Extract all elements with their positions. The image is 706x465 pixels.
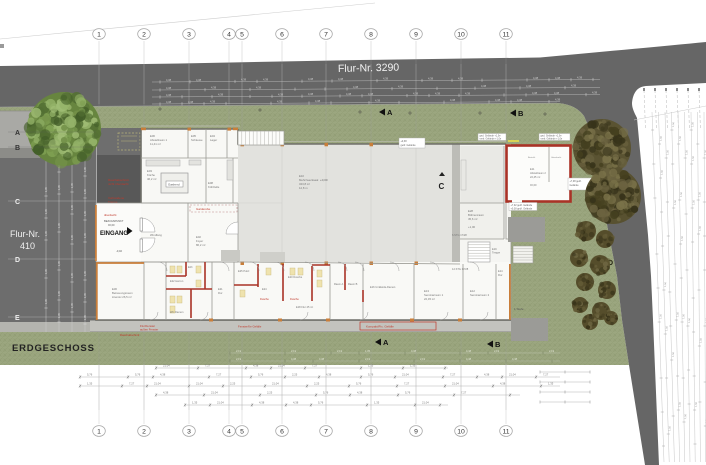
svg-text:geöf. Gelände: geöf. Gelände [401, 144, 417, 147]
svg-text:4,38: 4,38 [166, 100, 172, 104]
svg-text:1,50: 1,50 [678, 401, 681, 407]
svg-text:4,38: 4,38 [188, 100, 194, 104]
svg-text:Raum B: Raum B [348, 282, 358, 286]
svg-text:3: 3 [187, 429, 191, 436]
svg-text:21,04: 21,04 [278, 364, 285, 368]
svg-text:4,38: 4,38 [211, 86, 217, 90]
svg-text:E11: E11 [530, 167, 535, 171]
svg-text:1,50: 1,50 [659, 313, 662, 319]
svg-text:1,50: 1,50 [665, 325, 668, 331]
svg-text:B: B [518, 109, 524, 118]
svg-text:Abstellraum 2: Abstellraum 2 [530, 171, 546, 175]
svg-text:4,38: 4,38 [263, 77, 269, 81]
svg-text:Kühlzelle: Kühlzelle [208, 185, 220, 189]
svg-text:4,38: 4,38 [253, 364, 259, 368]
svg-text:verb. Gelände +1,0e: verb. Gelände +1,0e [541, 138, 563, 141]
svg-text:Gasherd: Gasherd [168, 183, 180, 187]
svg-text:4,38: 4,38 [383, 77, 389, 81]
svg-text:E23: E23 [188, 266, 193, 269]
svg-text:1,50: 1,50 [661, 169, 664, 175]
svg-text:1,35: 1,35 [58, 291, 61, 296]
svg-text:1,50: 1,50 [699, 225, 702, 231]
svg-text:intensiv 26,5 m²: intensiv 26,5 m² [112, 295, 132, 299]
svg-text:1,35: 1,35 [58, 223, 61, 228]
svg-text:7: 7 [324, 32, 328, 39]
svg-text:46,2 m²: 46,2 m² [147, 177, 157, 181]
svg-text:1,35: 1,35 [71, 303, 74, 308]
svg-text:1,50: 1,50 [688, 317, 691, 323]
svg-text:1,35: 1,35 [45, 231, 48, 236]
svg-text:4: 4 [227, 429, 231, 436]
svg-text:Lager: Lager [210, 138, 217, 142]
svg-text:4,38: 4,38 [526, 84, 532, 88]
svg-text:8: 8 [369, 429, 373, 436]
svg-text:ERDGESCHOSS: ERDGESCHOSS [12, 343, 95, 354]
svg-text:21,04: 21,04 [154, 382, 161, 386]
svg-text:21,04: 21,04 [509, 373, 516, 377]
svg-text:-0,02: -0,02 [116, 249, 122, 253]
svg-text:4,38: 4,38 [259, 401, 265, 405]
svg-text:21,04: 21,04 [163, 364, 170, 368]
svg-text:1,35: 1,35 [71, 205, 74, 210]
svg-text:4,38: 4,38 [368, 92, 374, 96]
svg-text:4,38: 4,38 [465, 91, 471, 95]
svg-text:1,35: 1,35 [58, 261, 61, 266]
svg-text:Dusche: Dusche [290, 297, 299, 301]
svg-text:7,27: 7,27 [216, 373, 222, 377]
svg-text:7,27: 7,27 [450, 373, 456, 377]
svg-text:Gelände: Gelände [570, 184, 580, 187]
svg-text:4,38: 4,38 [256, 86, 262, 90]
svg-text:1,50: 1,50 [679, 135, 682, 141]
svg-text:4,38: 4,38 [484, 373, 490, 377]
svg-text:4,38: 4,38 [435, 92, 441, 96]
svg-text:1,35: 1,35 [84, 271, 87, 276]
svg-text:11: 11 [502, 429, 509, 436]
svg-text:86,2 m²: 86,2 m² [196, 243, 206, 247]
svg-text:4,48: 4,48 [466, 349, 472, 353]
svg-text:21,04: 21,04 [211, 391, 218, 395]
svg-text:11: 11 [502, 32, 509, 39]
svg-text:2,25: 2,25 [314, 382, 320, 386]
svg-text:Bestuhl.: Bestuhl. [528, 156, 536, 159]
svg-text:2,25: 2,25 [292, 373, 298, 377]
svg-text:Garderobe: Garderobe [196, 207, 211, 211]
svg-text:1,50: 1,50 [672, 351, 675, 357]
svg-text:5: 5 [240, 429, 244, 436]
svg-text:4,38: 4,38 [532, 91, 538, 95]
svg-text:1,35: 1,35 [84, 167, 87, 172]
svg-text:1,35: 1,35 [45, 299, 48, 304]
svg-text:7,27: 7,27 [312, 364, 318, 368]
svg-text:EINGANG: EINGANG [100, 231, 128, 237]
svg-text:Seminarraum 2: Seminarraum 2 [470, 293, 490, 297]
svg-text:1,50: 1,50 [681, 235, 684, 241]
svg-text:4,38: 4,38 [495, 98, 501, 102]
svg-text:8: 8 [369, 32, 373, 39]
svg-text:1,35: 1,35 [45, 209, 48, 214]
svg-text:2,25: 2,25 [267, 391, 273, 395]
svg-text:4,38: 4,38 [592, 91, 598, 95]
svg-text:Fenster/Ke Gefälle: Fenster/Ke Gefälle [238, 325, 262, 329]
svg-text:Treppe: Treppe [492, 251, 501, 255]
svg-text:410: 410 [20, 241, 35, 251]
svg-text:21,04: 21,04 [422, 401, 429, 405]
svg-text:E24: E24 [262, 287, 267, 291]
svg-text:1,50: 1,50 [699, 337, 702, 343]
svg-text:verb. Gelände +1,0e: verb. Gelände +1,0e [480, 138, 502, 141]
svg-text:Flur-Nr.: Flur-Nr. [10, 229, 40, 239]
svg-text:E21: E21 [218, 287, 223, 291]
svg-text:±0,00: ±0,00 [530, 183, 537, 187]
svg-text:1,50: 1,50 [674, 199, 677, 205]
svg-text:Kompakt/Fix. Gefälle: Kompakt/Fix. Gefälle [366, 325, 394, 329]
svg-text:4,38: 4,38 [308, 92, 314, 96]
svg-text:+7,08 geöf.: +7,08 geöf. [570, 180, 582, 183]
svg-text:12.STG 17/28: 12.STG 17/28 [452, 267, 469, 271]
svg-text:1,50: 1,50 [664, 281, 667, 287]
svg-text:2,19: 2,19 [549, 349, 555, 353]
svg-text:22,45 m²: 22,45 m² [530, 175, 540, 179]
svg-text:4,38: 4,38 [533, 76, 539, 80]
svg-text:1,35: 1,35 [71, 273, 74, 278]
svg-text:4,38: 4,38 [293, 401, 299, 405]
svg-text:E: E [15, 315, 20, 322]
svg-text:1,35: 1,35 [84, 233, 87, 238]
svg-text:4,38: 4,38 [278, 92, 284, 96]
svg-text:7,27: 7,27 [129, 382, 135, 386]
svg-text:6: 6 [280, 32, 284, 39]
svg-text:BEZUGSPUNKT: BEZUGSPUNKT [104, 219, 124, 223]
svg-text:1,35: 1,35 [365, 349, 371, 353]
svg-text:E16 Umkleide-Damen: E16 Umkleide-Damen [370, 285, 396, 289]
svg-text:4,38: 4,38 [291, 357, 297, 361]
svg-text:+1,00: +1,00 [468, 225, 476, 229]
svg-text:1,35: 1,35 [87, 382, 93, 386]
svg-text:1,50: 1,50 [685, 149, 688, 155]
svg-text:B: B [15, 145, 20, 152]
svg-text:2: 2 [142, 429, 146, 436]
svg-text:1 Stufe: 1 Stufe [514, 307, 524, 311]
svg-text:5,76: 5,76 [87, 373, 93, 377]
svg-text:1,35: 1,35 [45, 269, 48, 274]
svg-text:5: 5 [240, 32, 244, 39]
svg-text:4,38: 4,38 [555, 98, 561, 102]
svg-text:4,38: 4,38 [357, 391, 363, 395]
svg-text:4,38: 4,38 [241, 78, 247, 82]
svg-text:Windfang: Windfang [150, 233, 162, 237]
svg-text:2,19: 2,19 [420, 357, 426, 361]
svg-text:4,38: 4,38 [308, 77, 314, 81]
svg-text:4,38: 4,38 [210, 100, 216, 104]
svg-text:E20 Dusche: E20 Dusche [288, 275, 303, 279]
svg-text:7,27: 7,27 [543, 373, 549, 377]
svg-text:10: 10 [457, 429, 465, 436]
svg-text:4,38: 4,38 [375, 99, 381, 103]
svg-text:E25 Putzr.: E25 Putzr. [238, 269, 250, 273]
svg-text:1,50: 1,50 [668, 425, 671, 431]
svg-text:21,04: 21,04 [217, 401, 224, 405]
svg-text:7,27: 7,27 [205, 364, 211, 368]
svg-text:4,38: 4,38 [166, 93, 172, 97]
svg-text:11,41 m²: 11,41 m² [150, 142, 161, 146]
svg-text:4,38: 4,38 [500, 382, 506, 386]
svg-text:+0,38 geöf. Gelände: +0,38 geöf. Gelände [511, 208, 533, 211]
svg-text:4,38: 4,38 [555, 76, 561, 80]
svg-text:4,38: 4,38 [326, 373, 332, 377]
svg-text:4,38: 4,38 [450, 98, 456, 102]
svg-text:außen Fenster: außen Fenster [140, 328, 158, 332]
svg-text:1,50: 1,50 [672, 121, 675, 127]
svg-text:Dusche: Dusche [260, 297, 269, 301]
svg-text:1,50: 1,50 [682, 313, 685, 319]
svg-text:4,38: 4,38 [481, 84, 487, 88]
svg-text:4,38: 4,38 [196, 78, 202, 82]
svg-text:10: 10 [457, 32, 465, 39]
svg-text:Rauchabschnitt: Rauchabschnitt [120, 333, 140, 337]
svg-text:1,35: 1,35 [374, 401, 380, 405]
svg-text:5,76: 5,76 [318, 401, 324, 405]
svg-text:4,38: 4,38 [411, 349, 417, 353]
svg-text:21,04: 21,04 [452, 382, 459, 386]
svg-text:4,38: 4,38 [166, 78, 172, 82]
svg-text:WC Damen: WC Damen [170, 310, 184, 314]
svg-text:2,19: 2,19 [291, 349, 297, 353]
svg-text:Flur-Nr. 3290: Flur-Nr. 3290 [338, 62, 400, 75]
svg-text:1: 1 [97, 429, 101, 436]
svg-text:1,35: 1,35 [71, 235, 74, 240]
svg-text:1,50: 1,50 [660, 135, 663, 141]
svg-text:4,38: 4,38 [517, 98, 523, 102]
svg-text:12,8 m: 12,8 m [299, 186, 308, 190]
svg-text:1,35: 1,35 [71, 183, 74, 188]
svg-text:45,6 m²: 45,6 m² [468, 217, 478, 221]
svg-text:E14: E14 [498, 269, 503, 273]
svg-text:7,27: 7,27 [461, 391, 467, 395]
svg-text:1,35: 1,35 [84, 211, 87, 216]
svg-text:4,38: 4,38 [398, 85, 404, 89]
svg-text:21,04: 21,04 [272, 382, 279, 386]
svg-text:4,38: 4,38 [218, 93, 224, 97]
svg-text:4,48: 4,48 [512, 357, 518, 361]
svg-text:1,50: 1,50 [680, 191, 683, 197]
svg-text:1,35: 1,35 [84, 315, 87, 320]
svg-text:4,38: 4,38 [319, 357, 325, 361]
svg-text:4,38: 4,38 [413, 92, 419, 96]
svg-text:4,38: 4,38 [577, 76, 583, 80]
svg-text:2,19: 2,19 [236, 349, 242, 353]
svg-text:1,50: 1,50 [684, 413, 687, 419]
svg-text:4,38: 4,38 [458, 76, 464, 80]
svg-text:9: 9 [414, 429, 418, 436]
svg-text:nicht überdacht: nicht überdacht [108, 182, 129, 186]
svg-text:A: A [383, 338, 389, 347]
svg-text:4,38: 4,38 [346, 92, 352, 96]
svg-text:B: B [495, 340, 501, 349]
svg-text:7: 7 [324, 429, 328, 436]
svg-text:C: C [15, 199, 20, 206]
svg-text:1,35: 1,35 [58, 185, 61, 190]
svg-text:4,38: 4,38 [571, 84, 577, 88]
svg-text:2: 2 [142, 32, 146, 39]
svg-text:1,50: 1,50 [691, 121, 694, 127]
svg-text:1,50: 1,50 [676, 311, 679, 317]
svg-text:C: C [439, 182, 445, 191]
svg-text:Flur: Flur [498, 273, 503, 277]
svg-text:4,48: 4,48 [466, 357, 472, 361]
svg-text:21,04: 21,04 [402, 373, 409, 377]
svg-text:+0,00: +0,00 [320, 178, 328, 182]
svg-text:E18 Flur 45 m²: E18 Flur 45 m² [296, 305, 313, 309]
svg-text:22,45 m²: 22,45 m² [424, 297, 435, 301]
svg-text:A: A [15, 130, 20, 137]
svg-text:1,35: 1,35 [84, 293, 87, 298]
svg-text:4,38: 4,38 [554, 91, 560, 95]
svg-text:1,35: 1,35 [192, 401, 198, 405]
svg-text:±0,00: ±0,00 [108, 223, 115, 227]
svg-text:Unterbucht: Unterbucht [551, 156, 562, 159]
svg-text:Flur: Flur [218, 291, 223, 295]
svg-text:5,76: 5,76 [405, 391, 411, 395]
svg-text:2,19: 2,19 [236, 357, 242, 361]
svg-text:6.STG 17/28: 6.STG 17/28 [452, 233, 467, 237]
svg-text:4,38: 4,38 [353, 85, 359, 89]
svg-text:1,35: 1,35 [410, 364, 416, 368]
svg-text:1,35: 1,35 [84, 189, 87, 194]
svg-text:5,76: 5,76 [356, 382, 362, 386]
svg-text:2,19: 2,19 [365, 357, 371, 361]
svg-text:3: 3 [187, 32, 191, 39]
svg-text:4,38: 4,38 [163, 391, 169, 395]
svg-text:5,76: 5,76 [258, 373, 264, 377]
svg-text:2,25: 2,25 [230, 382, 236, 386]
svg-text:1,50: 1,50 [692, 199, 695, 205]
svg-text:+0,38: +0,38 [401, 140, 408, 143]
svg-text:4,38: 4,38 [277, 99, 283, 103]
svg-text:2,19: 2,19 [337, 349, 343, 353]
svg-text:7,27: 7,27 [404, 382, 410, 386]
svg-text:4,38: 4,38 [166, 86, 172, 90]
svg-text:Raum A: Raum A [334, 282, 343, 286]
svg-text:1,35: 1,35 [45, 187, 48, 192]
svg-text:D: D [15, 257, 20, 264]
svg-text:9: 9 [414, 32, 418, 39]
svg-text:4,38: 4,38 [160, 373, 166, 377]
svg-text:überdacht: überdacht [104, 213, 117, 217]
svg-text:4: 4 [227, 32, 231, 39]
svg-text:Schleuse: Schleuse [191, 138, 203, 142]
svg-text:1,50: 1,50 [698, 191, 701, 197]
svg-text:1,50: 1,50 [692, 155, 695, 161]
svg-text:1,50: 1,50 [666, 149, 669, 155]
svg-text:5,76: 5,76 [135, 373, 141, 377]
svg-text:A: A [387, 108, 393, 117]
svg-text:1,50: 1,50 [695, 401, 698, 407]
svg-text:4,38: 4,38 [315, 99, 321, 103]
svg-text:21,04: 21,04 [196, 382, 203, 386]
svg-text:6: 6 [280, 429, 284, 436]
svg-text:2,19: 2,19 [494, 349, 500, 353]
svg-text:4,38: 4,38 [428, 77, 434, 81]
svg-text:E22 Herren: E22 Herren [170, 279, 184, 283]
svg-text:E19: E19 [492, 247, 497, 251]
svg-text:4,38: 4,38 [338, 77, 344, 81]
svg-text:1: 1 [97, 32, 101, 39]
